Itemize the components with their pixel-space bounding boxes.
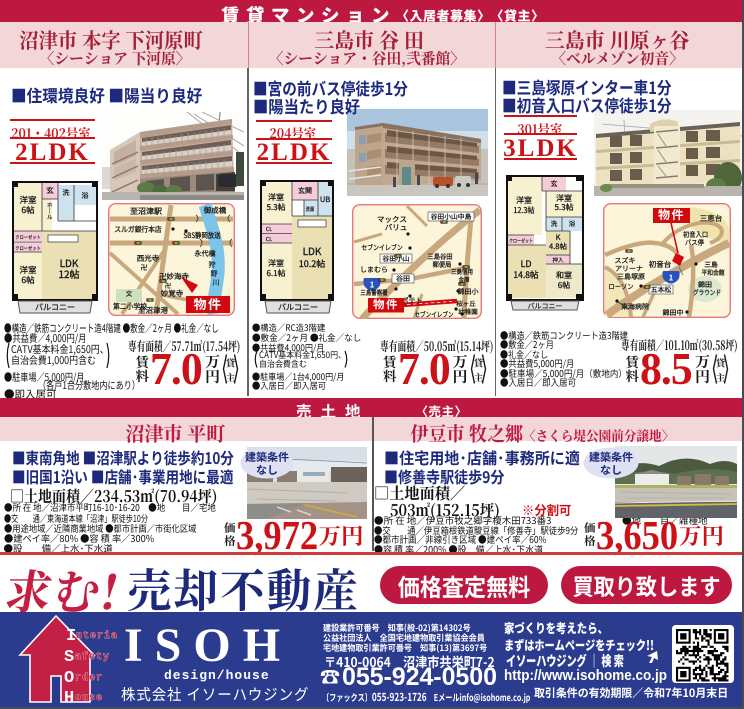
svg-text:至沼津港: 至沼津港 xyxy=(138,305,168,316)
svg-text:卍: 卍 xyxy=(141,263,148,273)
svg-text:洗: 洗 xyxy=(551,218,558,228)
svg-text:H: H xyxy=(64,689,74,706)
svg-text:rder: rder xyxy=(75,672,103,684)
svg-text:クローゼット: クローゼット xyxy=(15,235,41,241)
svg-text:☎: ☎ xyxy=(320,664,340,688)
svg-text:6帖: 6帖 xyxy=(21,204,35,216)
svg-text:なし: なし xyxy=(600,462,622,478)
svg-text:三恵台: 三恵台 xyxy=(700,213,723,224)
svg-text:谷田: 谷田 xyxy=(396,274,410,284)
svg-text:12.3帖: 12.3帖 xyxy=(513,205,535,217)
svg-text:錦田小: 錦田小 xyxy=(457,287,479,297)
svg-text:セブンイレブン: セブンイレブン xyxy=(361,241,403,252)
svg-text:主: 主 xyxy=(716,370,726,384)
svg-text:S: S xyxy=(64,648,74,667)
svg-text:至沼津駅: 至沼津駅 xyxy=(130,206,163,217)
svg-text:CL: CL xyxy=(266,225,273,233)
svg-text:クローゼット: クローゼット xyxy=(509,238,533,245)
svg-text:主: 主 xyxy=(226,370,236,384)
svg-text:14.8帖: 14.8帖 xyxy=(513,268,538,281)
svg-text:6帖: 6帖 xyxy=(558,280,570,291)
svg-text:郵便局: 郵便局 xyxy=(433,259,452,270)
svg-text:玄: 玄 xyxy=(46,185,54,196)
svg-text:五本松: 五本松 xyxy=(651,284,672,294)
svg-text:バス停: バス停 xyxy=(685,237,704,248)
svg-text:ル: ル xyxy=(47,213,53,221)
svg-text:6.1帖: 6.1帖 xyxy=(266,268,285,279)
svg-text:055-924-0500: 055-924-0500 xyxy=(342,664,497,688)
svg-text:5.3帖: 5.3帖 xyxy=(265,202,285,213)
svg-text:afety: afety xyxy=(75,651,110,663)
svg-text:物件: 物件 xyxy=(373,297,399,313)
svg-text:しまむら: しまむら xyxy=(360,265,388,275)
svg-text:洗面: 洗面 xyxy=(306,205,315,213)
svg-text:1: 1 xyxy=(669,273,674,284)
svg-text:永代橋: 永代橋 xyxy=(194,249,217,259)
svg-text:物件: 物件 xyxy=(193,294,222,313)
svg-text:物件: 物件 xyxy=(658,206,685,223)
svg-text:4.8帖: 4.8帖 xyxy=(548,241,567,252)
svg-text:バルコニー: バルコニー xyxy=(35,302,75,313)
svg-text:主: 主 xyxy=(473,370,483,384)
svg-text:洗: 洗 xyxy=(63,188,70,198)
svg-text:平和会館: 平和会館 xyxy=(701,267,725,277)
svg-text:12帖: 12帖 xyxy=(58,266,79,281)
svg-text:スルガ銀行本店: スルガ銀行本店 xyxy=(114,225,161,236)
svg-text:ローソン: ローソン xyxy=(608,281,633,292)
svg-text:玄関: 玄関 xyxy=(298,186,312,196)
svg-text:初音台: 初音台 xyxy=(648,259,672,270)
svg-text:nteria: nteria xyxy=(76,630,118,642)
svg-text:LDK: LDK xyxy=(303,243,322,258)
svg-text:SBS静岡放送: SBS静岡放送 xyxy=(183,230,220,241)
svg-text:妙覚寺: 妙覚寺 xyxy=(161,288,184,299)
svg-text:浴: 浴 xyxy=(569,218,576,228)
svg-text:押入: 押入 xyxy=(552,256,564,264)
svg-text:錦田中: 錦田中 xyxy=(662,308,684,318)
svg-text:グラウンド: グラウンド xyxy=(693,287,721,297)
svg-text:セブンイレブン: セブンイレブン xyxy=(414,309,453,319)
svg-text:ポテト: ポテト xyxy=(402,296,423,306)
svg-text:玄: 玄 xyxy=(551,179,558,189)
svg-text:貸: 貸 xyxy=(473,356,484,370)
svg-text:O: O xyxy=(64,669,74,688)
svg-text:御成橋: 御成橋 xyxy=(203,205,227,216)
svg-text:谷田小山中島: 谷田小山中島 xyxy=(431,211,472,221)
svg-text:バリュ: バリュ xyxy=(385,222,408,233)
svg-text:貸: 貸 xyxy=(716,356,727,370)
svg-text:なし: なし xyxy=(256,462,278,478)
svg-text:6帖: 6帖 xyxy=(21,274,35,286)
svg-text:I: I xyxy=(66,627,76,646)
svg-text:川: 川 xyxy=(212,278,220,288)
svg-text:ouse: ouse xyxy=(75,693,103,704)
svg-text:文: 文 xyxy=(126,288,133,298)
svg-text:10.2帖: 10.2帖 xyxy=(299,257,326,270)
svg-text:CL: CL xyxy=(266,235,273,243)
svg-text:UB: UB xyxy=(320,194,330,205)
svg-text:バルコニー: バルコニー xyxy=(528,302,563,312)
svg-text:浴: 浴 xyxy=(82,191,90,201)
svg-text:バルコニー: バルコニー xyxy=(278,302,318,313)
svg-text:貸: 貸 xyxy=(226,356,237,370)
svg-text:5.3帖: 5.3帖 xyxy=(553,202,573,213)
svg-text:クローゼット: クローゼット xyxy=(15,246,41,252)
